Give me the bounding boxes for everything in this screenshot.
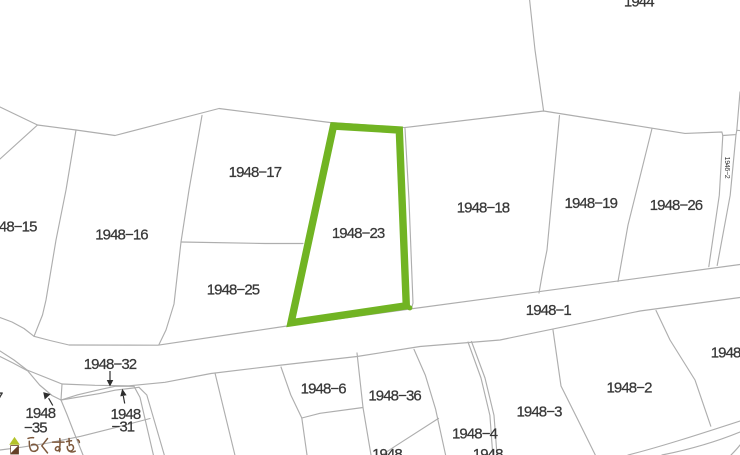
svg-text:−31: −31 — [112, 419, 135, 436]
svg-text:1948: 1948 — [372, 446, 402, 455]
svg-text:1948−17: 1948−17 — [229, 164, 282, 181]
svg-text:1948−4: 1948−4 — [452, 426, 498, 443]
svg-text:1948−32: 1948−32 — [84, 356, 137, 373]
svg-text:−35: −35 — [24, 419, 47, 436]
svg-text:1946−2: 1946−2 — [723, 157, 730, 179]
svg-text:1948−6: 1948−6 — [301, 381, 347, 398]
svg-text:1944: 1944 — [624, 0, 654, 11]
svg-text:1948−16: 1948−16 — [95, 227, 148, 244]
svg-text:1948: 1948 — [473, 446, 503, 455]
svg-text:1948−15: 1948−15 — [0, 219, 37, 236]
svg-text:1948−25: 1948−25 — [207, 282, 260, 299]
svg-text:1948−3: 1948−3 — [516, 404, 562, 421]
svg-text:1948−26: 1948−26 — [650, 197, 703, 214]
svg-text:1948−18: 1948−18 — [457, 200, 510, 217]
svg-text:1948−19: 1948−19 — [565, 195, 618, 212]
svg-text:1948−36: 1948−36 — [368, 388, 421, 405]
svg-text:1948−3: 1948−3 — [711, 345, 740, 362]
svg-text:1948−23: 1948−23 — [332, 225, 385, 242]
svg-text:1948−2: 1948−2 — [606, 380, 652, 397]
svg-text:1948−1: 1948−1 — [526, 302, 572, 319]
